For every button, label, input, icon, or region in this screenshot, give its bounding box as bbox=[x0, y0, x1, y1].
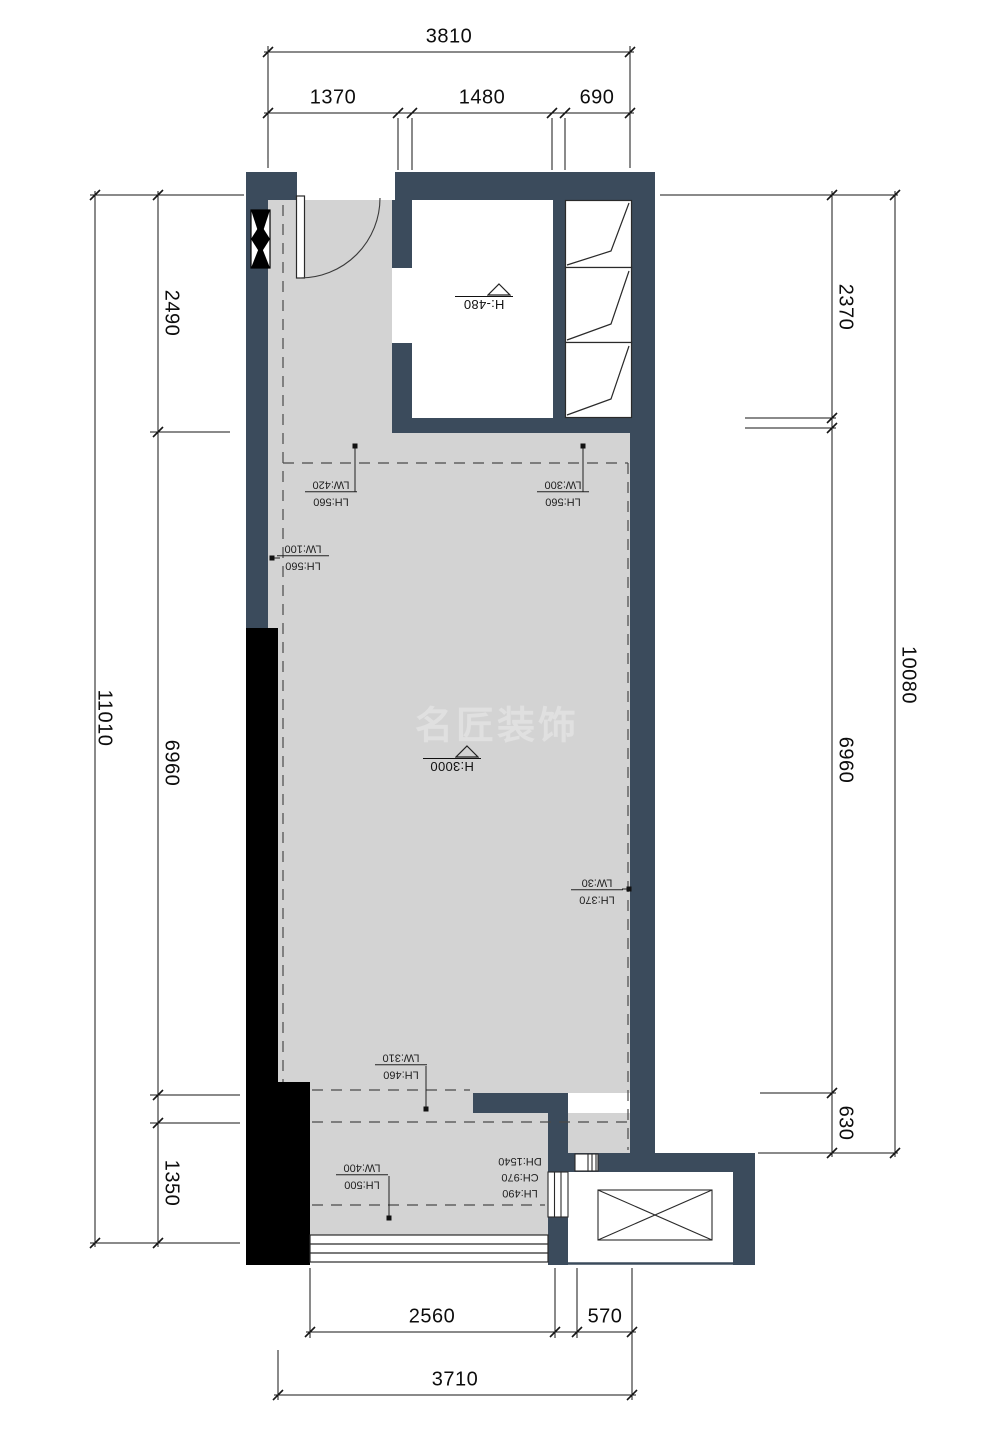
entry-door-symbol bbox=[297, 196, 381, 278]
beam-label-lw: LW:420 bbox=[313, 479, 350, 491]
beam-label-2: LH:560 LW:300 bbox=[535, 477, 591, 508]
dim-right-seg-2: 6960 bbox=[834, 737, 857, 784]
dim-bottom-overall: 3710 bbox=[432, 1369, 479, 1392]
elevator-symbol bbox=[568, 1190, 755, 1264]
dim-bottom-seg-2: 570 bbox=[588, 1306, 623, 1329]
dim-right-seg-1: 2370 bbox=[834, 284, 857, 331]
beam-label-lh: LH:370 bbox=[579, 893, 614, 905]
beam-label-4: LH:370 LW:30 bbox=[569, 875, 625, 906]
dim-left-seg-2: 6960 bbox=[160, 740, 183, 787]
beam-label-lh: LH:500 bbox=[344, 1178, 379, 1190]
beam-label-lw: LW:30 bbox=[582, 877, 613, 889]
dim-left-overall: 11010 bbox=[93, 690, 116, 747]
balcony-window bbox=[310, 1235, 548, 1262]
elevation-text: H:-480 bbox=[455, 297, 513, 313]
beam-label-1: LH:560 LW:420 bbox=[303, 477, 359, 508]
elevation-text: H:3000 bbox=[423, 759, 481, 775]
beam-label-lw: LW:400 bbox=[344, 1162, 381, 1174]
beam-label-3: LH:560 LW:100 bbox=[275, 541, 331, 572]
beam-label-rule bbox=[336, 1175, 388, 1176]
dim-top-seg-3: 690 bbox=[580, 87, 615, 110]
floor-plan-canvas: 名匠装饰 3810 1370 1480 690 11010 2490 6960 … bbox=[0, 0, 992, 1450]
shaft-top-window bbox=[575, 1154, 598, 1171]
beam-label-5: LH:460 LW:310 bbox=[373, 1050, 429, 1081]
elevation-triangle-icon bbox=[487, 283, 511, 296]
beam-label-lh: LH:460 bbox=[383, 1068, 418, 1080]
opening-label-line: CH:970 bbox=[501, 1171, 538, 1183]
dim-top-seg-2: 1480 bbox=[459, 87, 506, 110]
dim-right-seg-3: 630 bbox=[834, 1106, 857, 1141]
louver-panels bbox=[566, 201, 632, 418]
beam-label-lh: LH:560 bbox=[545, 495, 580, 507]
dim-top-overall: 3810 bbox=[426, 26, 473, 49]
beam-label-lw: LW:300 bbox=[545, 479, 582, 491]
beam-label-6: LH:500 LW:400 bbox=[334, 1160, 390, 1191]
elevation-mark-main: H:3000 bbox=[423, 745, 481, 775]
beam-label-lw: LW:310 bbox=[383, 1052, 420, 1064]
opening-label-line: LH:490 bbox=[502, 1187, 537, 1199]
beam-label-lh: LH:560 bbox=[313, 495, 348, 507]
dim-left-seg-3: 1350 bbox=[160, 1160, 183, 1207]
beam-label-rule bbox=[277, 556, 329, 557]
dim-right-overall: 10080 bbox=[897, 646, 920, 704]
watermark-text: 名匠装饰 bbox=[415, 695, 579, 750]
beam-label-rule bbox=[375, 1065, 427, 1066]
beam-label-rule bbox=[537, 492, 589, 493]
dim-bottom-seg-1: 2560 bbox=[409, 1306, 456, 1329]
beam-label-rule bbox=[305, 492, 357, 493]
beam-label-lw: LW:100 bbox=[285, 543, 322, 555]
dim-left-seg-1: 2490 bbox=[160, 290, 183, 337]
shaft-side-window bbox=[548, 1172, 568, 1217]
elevation-triangle-icon bbox=[455, 745, 479, 758]
beam-label-rule bbox=[571, 890, 623, 891]
beam-label-lh: LH:560 bbox=[285, 559, 320, 571]
opening-label-line: DH:1540 bbox=[498, 1155, 541, 1167]
flue-symbol bbox=[251, 210, 270, 268]
elevation-mark-bathroom: H:-480 bbox=[455, 283, 513, 313]
dim-top-seg-1: 1370 bbox=[310, 87, 357, 110]
opening-label: LH:490 CH:970 DH:1540 bbox=[490, 1152, 550, 1200]
